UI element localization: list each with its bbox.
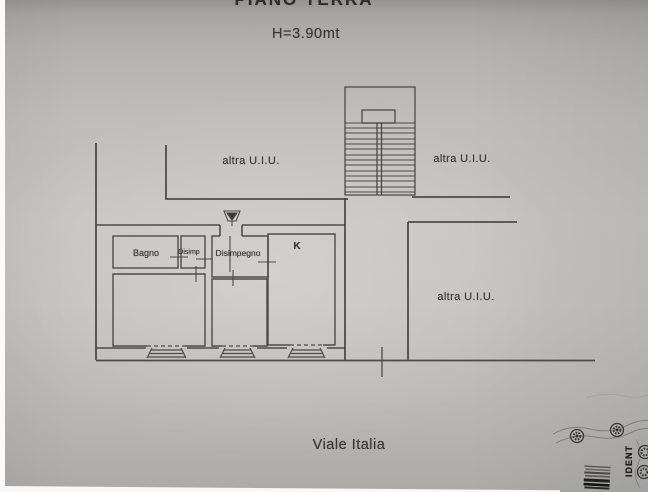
unit-label-top-right: altra U.I.U. — [433, 153, 490, 165]
room-label-disimp: Disimp — [178, 249, 199, 256]
height-note: H=3.90mt — [272, 26, 340, 42]
plan-title: PIANO TERRA — [234, 0, 373, 10]
room-label-disimpegno: Disimpegno — [216, 248, 261, 258]
room-label-kitchen: K — [293, 241, 300, 252]
photo-margin-left — [0, 0, 5, 492]
entrance-door-icon — [224, 211, 240, 226]
unit-label-right: altra U.I.U. — [437, 291, 494, 303]
unit-label-top-left: altra U.I.U. — [222, 155, 279, 167]
floorplan-drawing — [0, 0, 648, 492]
street-label: Viale Italia — [313, 437, 386, 453]
apartment-walls — [96, 225, 345, 348]
edge-vertical-text: IDENT — [624, 431, 634, 491]
room-label-bagno: Bagno — [133, 248, 159, 258]
barcode — [583, 465, 610, 489]
floorplan-photo: PIANO TERRA H=3.90mt altra U.I.U. altra … — [0, 0, 648, 492]
staircase — [345, 87, 415, 195]
windows — [147, 345, 325, 358]
